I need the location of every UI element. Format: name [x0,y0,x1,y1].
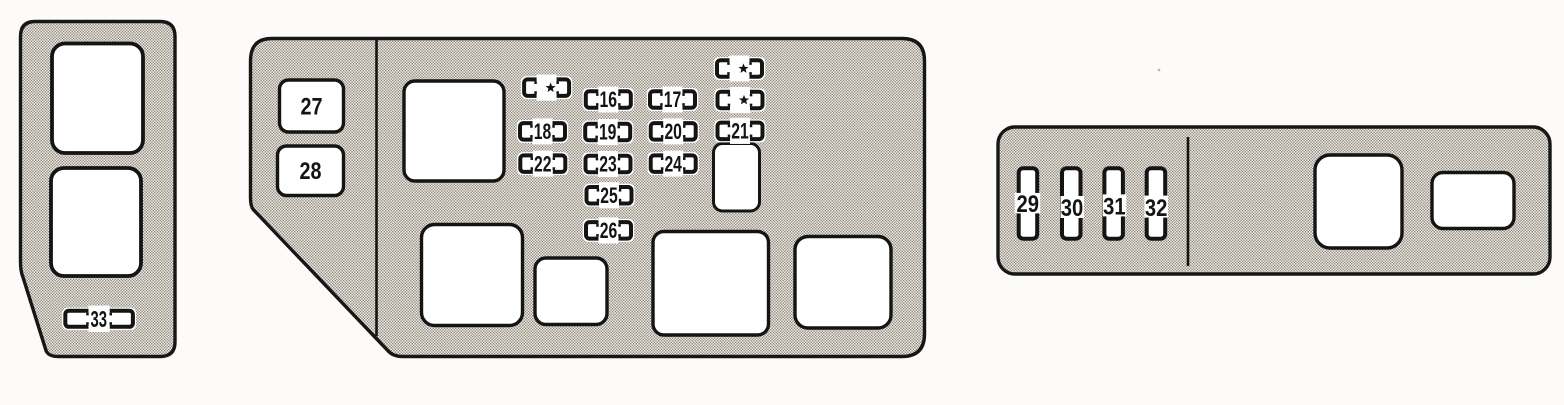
svg-text:32: 32 [1145,195,1168,222]
svg-text:19: 19 [599,120,617,145]
svg-text:16: 16 [600,87,618,112]
svg-text:26: 26 [600,218,618,243]
svg-text:22: 22 [534,151,552,176]
svg-text:33: 33 [91,306,108,332]
svg-text:24: 24 [664,151,682,176]
svg-text:28: 28 [300,158,322,185]
svg-text:30: 30 [1061,195,1084,222]
svg-text:25: 25 [600,183,618,208]
svg-text:29: 29 [1017,191,1040,218]
svg-text:18: 18 [534,119,552,144]
svg-text:23: 23 [599,152,617,177]
svg-text:27: 27 [301,94,323,121]
svg-text:17: 17 [664,87,682,112]
svg-text:31: 31 [1103,194,1126,221]
svg-text:20: 20 [664,119,682,144]
svg-text:21: 21 [731,119,749,144]
